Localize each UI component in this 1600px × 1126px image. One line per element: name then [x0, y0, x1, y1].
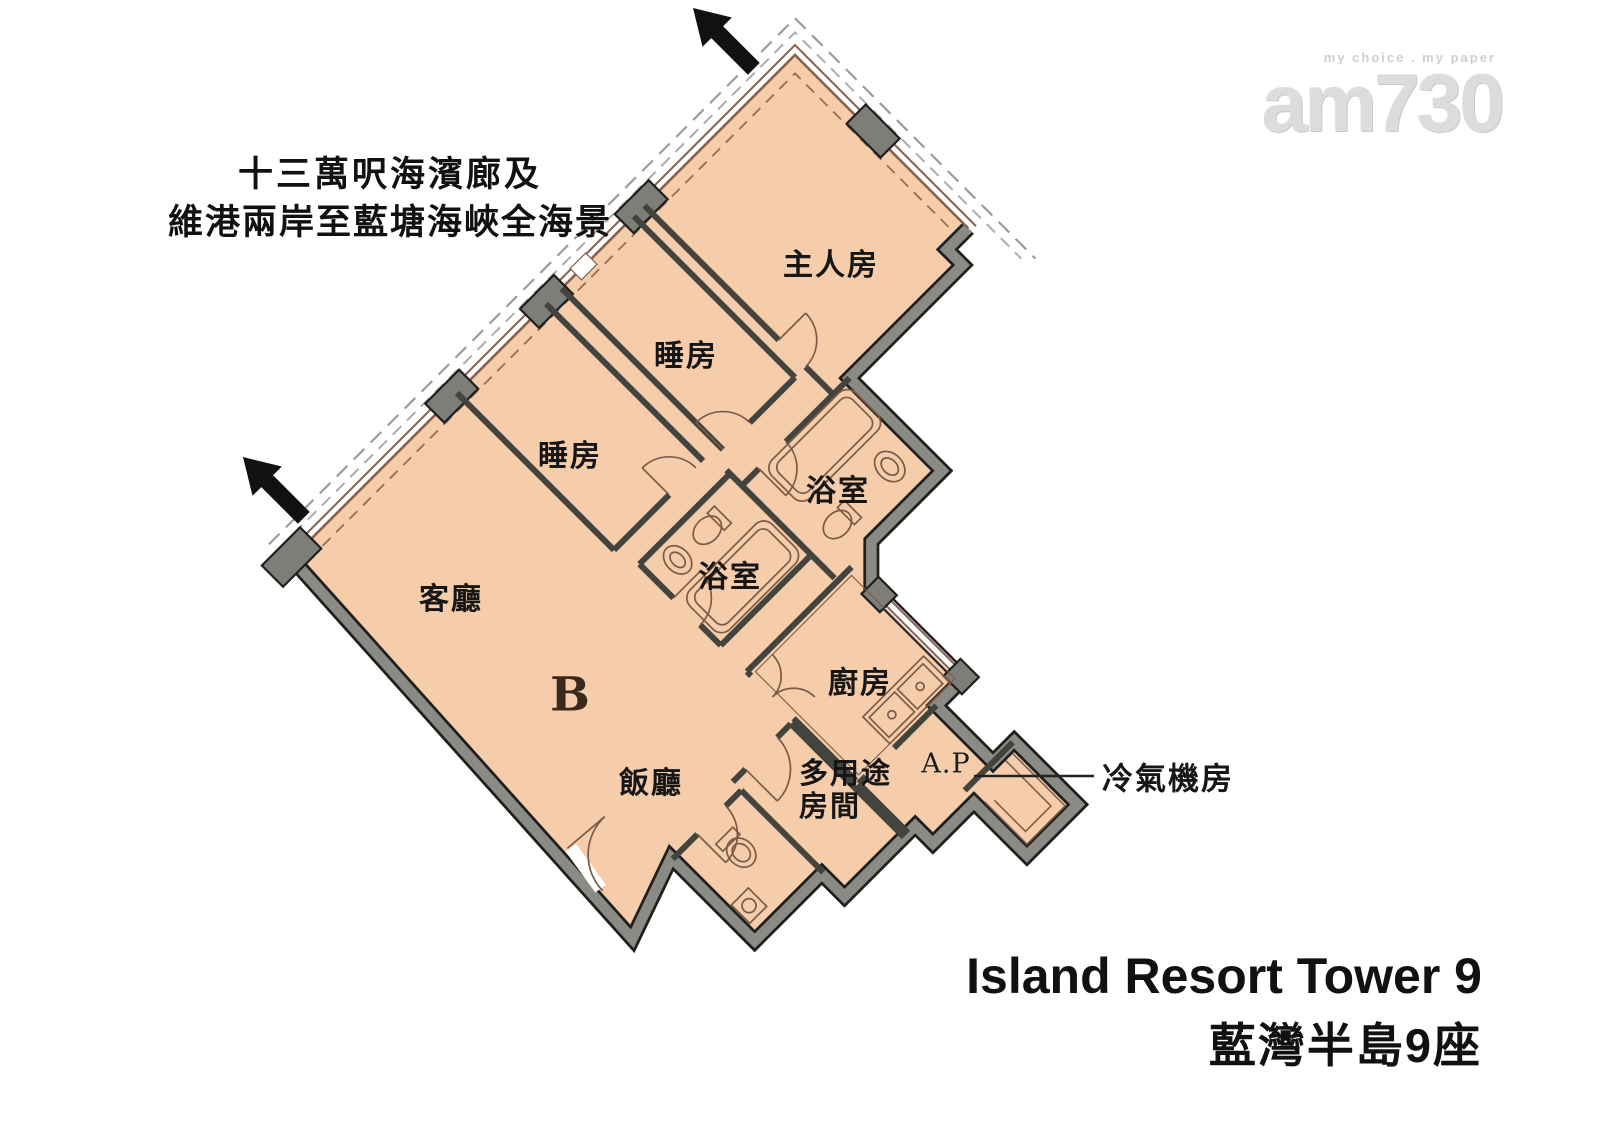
north-arrow-top [693, 8, 760, 75]
north-arrow-left [243, 457, 310, 524]
room-label-master: 主人房 [783, 240, 879, 284]
room-label-bedroom-upper: 睡房 [654, 331, 718, 375]
am730-logo: my choice . my paper am730 [1262, 50, 1502, 143]
room-label-bath-upper: 浴室 [806, 466, 870, 510]
header-line2: 維港兩岸至藍塘海峽全海景 [150, 198, 630, 248]
unit-letter: B [550, 668, 590, 723]
ac-room-callout-label: 冷氣機房 [1102, 754, 1234, 799]
header-line1: 十三萬呎海濱廊及 [150, 152, 630, 198]
footer-line1: Island Resort Tower 9 [966, 948, 1482, 1004]
multipurpose-line1: 多用途 [799, 758, 892, 791]
logo-brand: am730 [1262, 65, 1502, 143]
multipurpose-line2: 房間 [799, 791, 892, 824]
room-label-living: 客廳 [419, 574, 483, 618]
footer-line2: 藍灣半島9座 [966, 1018, 1482, 1074]
footer-text: Island Resort Tower 9 藍灣半島9座 [966, 948, 1482, 1074]
room-label-multipurpose: 多用途 房間 [799, 758, 892, 824]
room-label-dining: 飯廳 [619, 758, 683, 802]
floor-plan-page: 十三萬呎海濱廊及 維港兩岸至藍塘海峽全海景 my choice . my pap… [0, 0, 1600, 1126]
room-label-bath-lower: 浴室 [698, 552, 762, 596]
header-text: 十三萬呎海濱廊及 維港兩岸至藍塘海峽全海景 [150, 152, 630, 248]
room-label-bedroom-lower: 睡房 [538, 431, 602, 475]
room-label-ap: A.P [921, 749, 970, 780]
room-label-kitchen: 廚房 [828, 658, 892, 702]
